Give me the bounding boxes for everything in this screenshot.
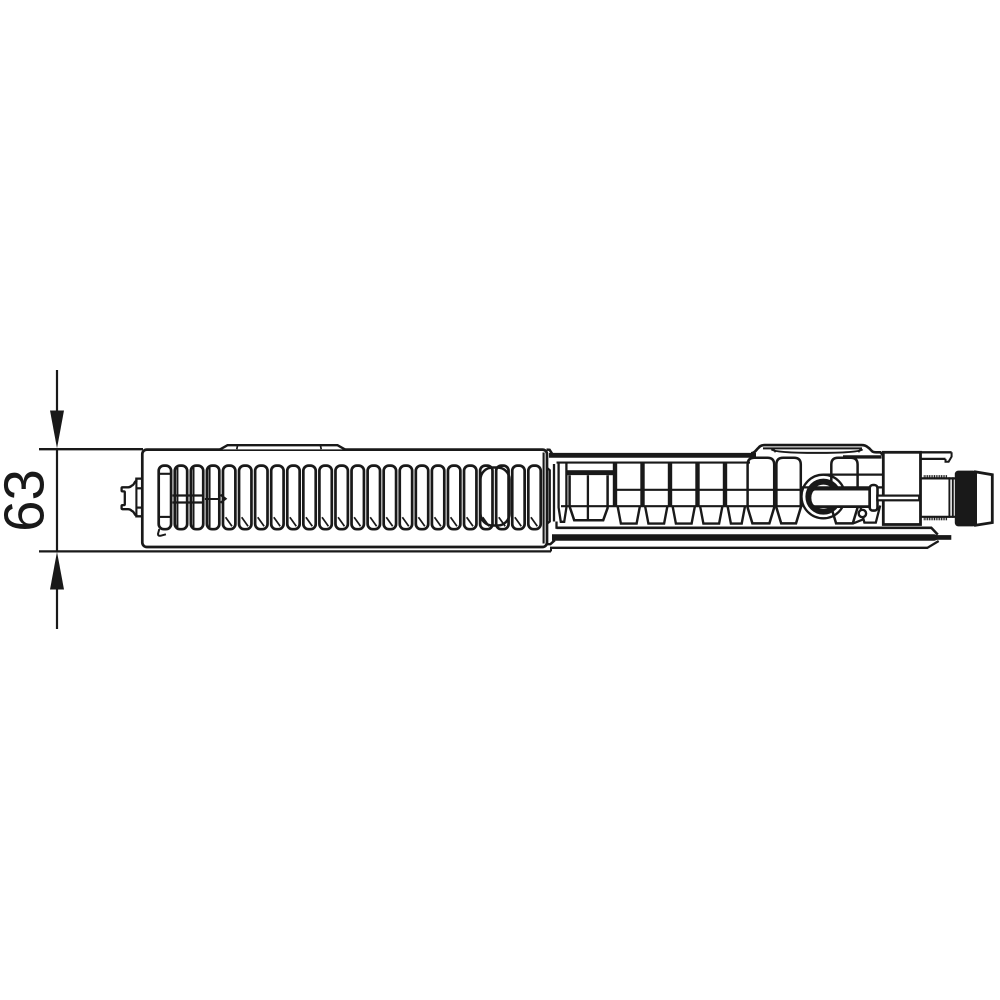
svg-text:63: 63 (0, 469, 56, 532)
